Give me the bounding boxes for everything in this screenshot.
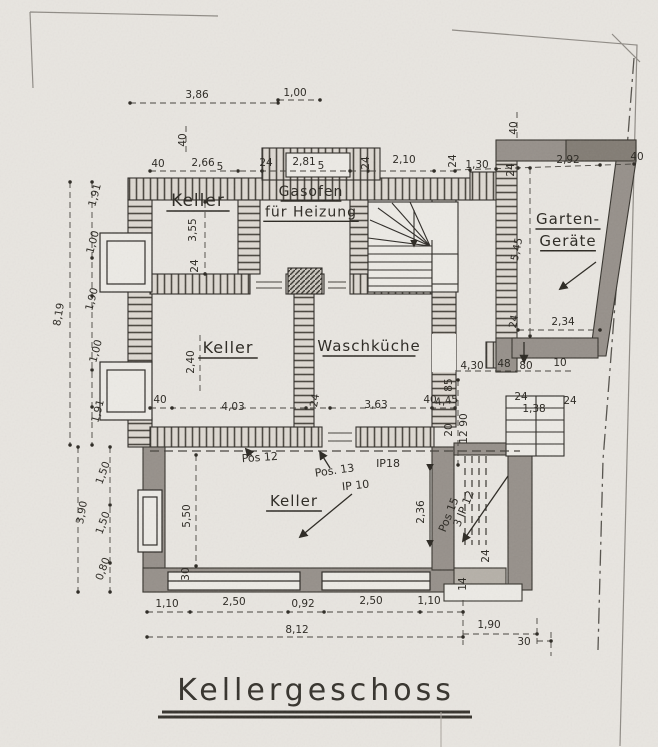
scanned-plan-sheet: KellerGasofenfür HeizungGarten-GeräteKel… xyxy=(0,0,658,747)
scan-grain-overlay xyxy=(0,0,658,747)
floor-plan-svg: KellerGasofenfür HeizungGarten-GeräteKel… xyxy=(0,0,658,747)
